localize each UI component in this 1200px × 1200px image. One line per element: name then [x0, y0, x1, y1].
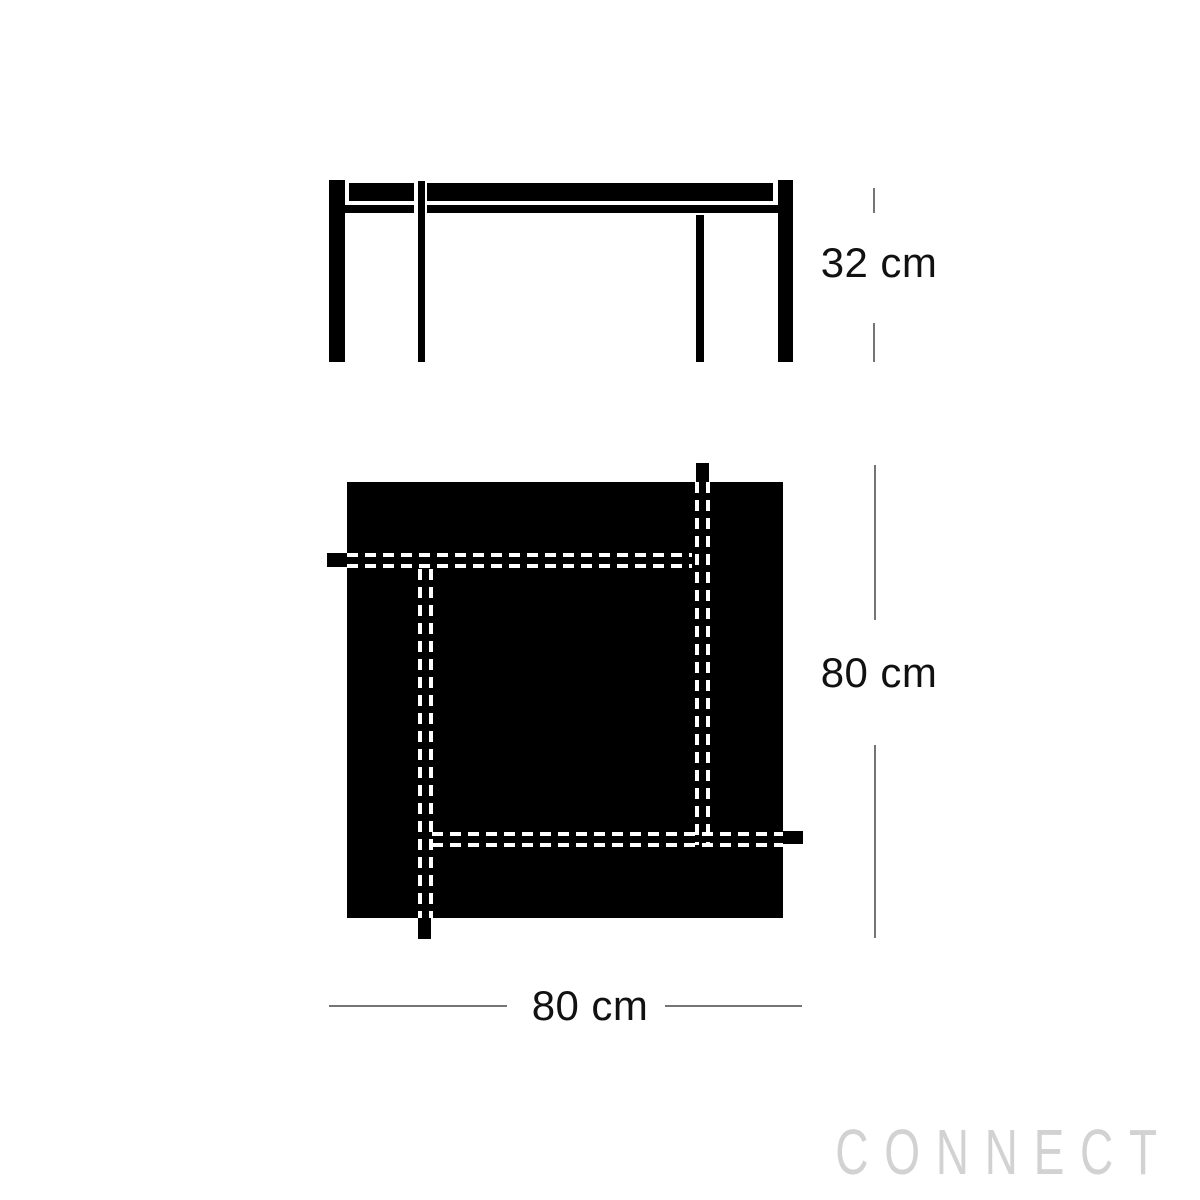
plan-hidden-rail-top-line2: [347, 564, 692, 568]
height-dimension-tick-bottom: [873, 323, 875, 362]
elevation-tabletop-left: [349, 183, 414, 201]
connect-watermark: CONNECT: [835, 1120, 1173, 1184]
elevation-tabletop-right: [427, 183, 773, 201]
elevation-right-leg: [778, 180, 793, 362]
elevation-apron-left: [345, 205, 414, 213]
plan-tabletop: [347, 482, 783, 918]
elevation-rear-leg: [696, 215, 704, 362]
plan-leg-stub-top: [696, 463, 709, 482]
elevation-apron-right: [427, 205, 778, 213]
plan-hidden-rail-top-line1: [347, 553, 692, 557]
depth-dimension-tick-top: [874, 465, 876, 620]
plan-hidden-rail-left-line1: [418, 569, 422, 918]
plan-leg-stub-right: [783, 831, 803, 844]
plan-hidden-rail-right-line1: [695, 482, 699, 845]
depth-dimension-label: 80 cm: [819, 652, 939, 694]
elevation-left-leg: [329, 180, 345, 362]
height-dimension-tick-top: [873, 188, 875, 213]
plan-hidden-rail-bottom-line1: [432, 832, 783, 836]
width-dimension-tick-left: [329, 1005, 507, 1007]
product-dimension-diagram: 32 cm 80 cm 80 cm CONNECT: [0, 0, 1200, 1200]
plan-hidden-rail-right-line2: [706, 482, 710, 845]
plan-hidden-rail-left-line2: [429, 569, 433, 918]
plan-leg-stub-left: [327, 553, 347, 567]
width-dimension-label: 80 cm: [530, 985, 650, 1027]
plan-hidden-rail-bottom-line2: [432, 843, 783, 847]
depth-dimension-tick-bottom: [874, 745, 876, 938]
width-dimension-tick-right: [665, 1005, 802, 1007]
height-dimension-label: 32 cm: [819, 242, 939, 284]
plan-leg-stub-bottom: [418, 918, 431, 939]
elevation-front-leg: [418, 181, 425, 362]
